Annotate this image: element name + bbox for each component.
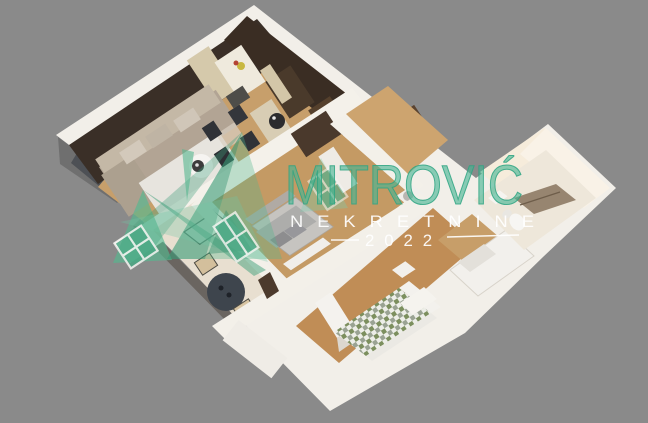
svg-text:MITROVIĆ: MITROVIĆ [285,153,523,216]
svg-text:NEKRETNINE: NEKRETNINE [290,212,548,231]
svg-text:2022: 2022 [365,231,442,250]
